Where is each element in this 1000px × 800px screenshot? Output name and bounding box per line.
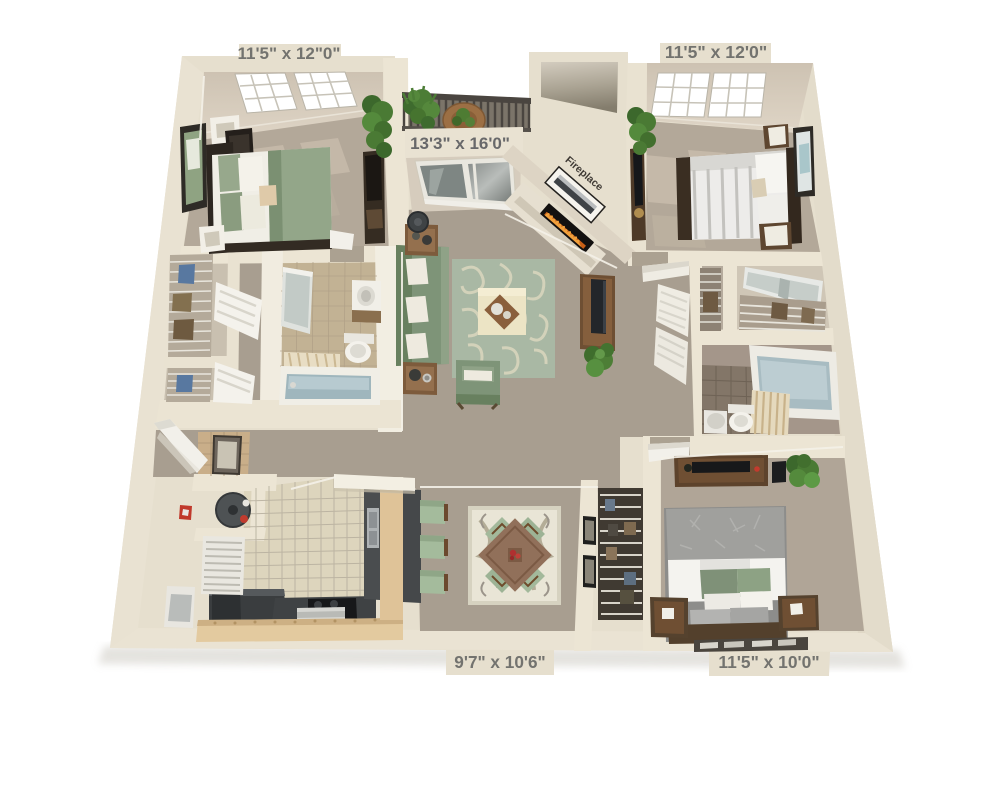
svg-text:11'5" x 12'0": 11'5" x 12'0" xyxy=(665,42,767,62)
svg-text:11'5" x 12"0": 11'5" x 12"0" xyxy=(238,44,341,63)
svg-text:9'7" x 10'6": 9'7" x 10'6" xyxy=(454,652,545,672)
svg-text:11'5" x 10'0": 11'5" x 10'0" xyxy=(718,652,819,672)
svg-text:13'3" x 16'0": 13'3" x 16'0" xyxy=(410,134,510,153)
